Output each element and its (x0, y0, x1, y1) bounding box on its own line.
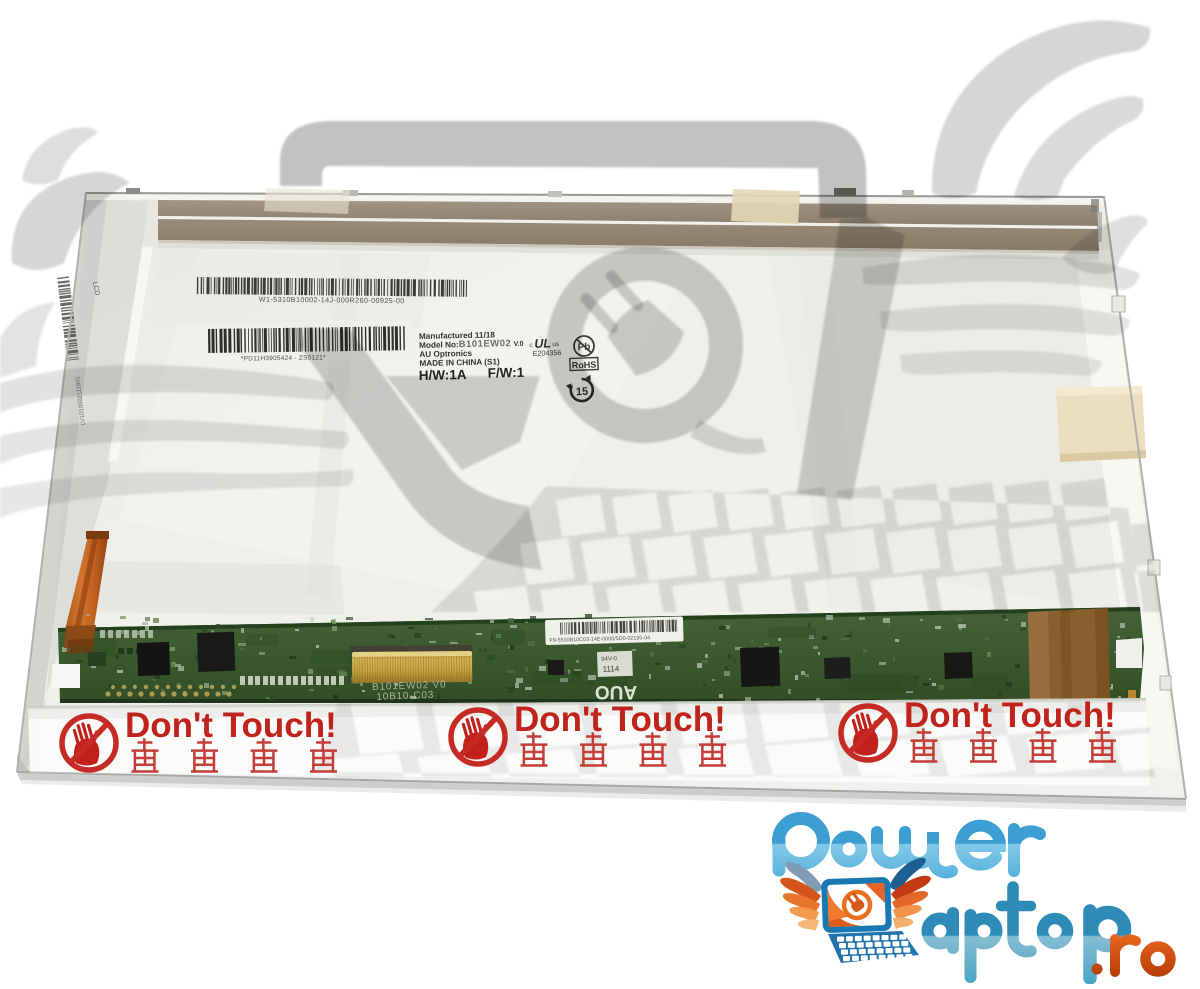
svg-text:Don't Touch!: Don't Touch! (514, 700, 726, 739)
svg-text:94V-0: 94V-0 (601, 656, 618, 663)
svg-text:W1-5310B10002-14J-000R260-0092: W1-5310B10002-14J-000R260-00925-00 (259, 295, 405, 306)
svg-text:1114: 1114 (602, 664, 619, 674)
svg-text:10B10-C03: 10B10-C03 (376, 690, 434, 703)
svg-text:AUO: AUO (595, 681, 637, 702)
svg-text:Don't Touch!: Don't Touch! (125, 706, 337, 745)
svg-text:Don't Touch!: Don't Touch! (904, 696, 1116, 735)
